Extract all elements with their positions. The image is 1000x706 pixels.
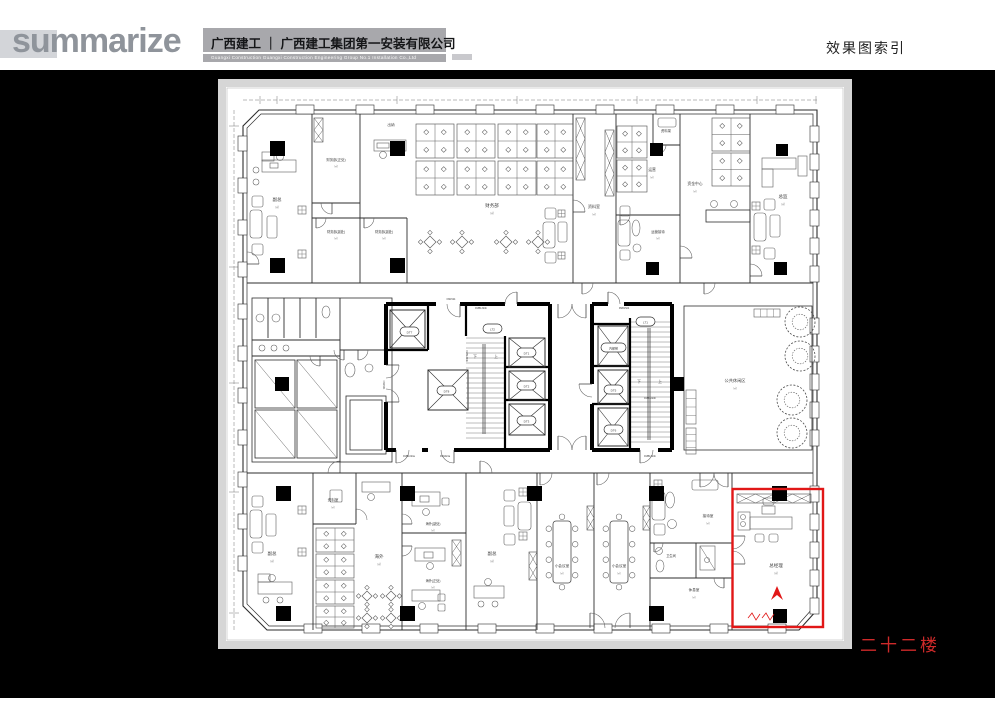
svg-text:卫生间: 卫生间 [666,553,676,558]
svg-text:小会议室: 小会议室 [612,563,627,568]
svg-text:内部梯: 内部梯 [609,345,618,350]
svg-text:(㎡): (㎡) [592,212,596,216]
svg-text:下: 下 [473,355,477,359]
svg-text:DT8: DT8 [444,389,450,393]
svg-text:总监: 总监 [779,193,788,199]
svg-text:小会议室: 小会议室 [555,563,570,568]
svg-text:财务部(副处): 财务部(副处) [327,229,345,234]
svg-text:资料室: 资料室 [328,497,339,502]
banner-divider [203,52,446,54]
svg-text:财务部(正处): 财务部(正处) [326,157,345,162]
svg-text:接待室: 接待室 [703,513,714,518]
page-title: 效果图索引 [826,38,906,58]
svg-text:(㎡): (㎡) [331,505,335,509]
svg-text:(㎡): (㎡) [334,164,338,168]
floor-label: 二十二楼 [860,631,940,656]
svg-text:FMB1324b: FMB1324b [475,307,487,310]
svg-text:FM1524: FM1524 [447,298,456,301]
svg-text:公共休闲区: 公共休闲区 [725,377,746,384]
svg-text:FMB1024a: FMB1024a [403,455,415,458]
svg-text:(㎡): (㎡) [617,571,621,575]
svg-text:(㎡): (㎡) [693,189,697,193]
svg-text:(㎡): (㎡) [490,211,494,215]
company-name-en: Guangxi Construction Guangxi Constructio… [211,55,416,60]
svg-text:副总: 副总 [488,550,497,557]
svg-text:财务部(副处): 财务部(副处) [375,229,393,234]
svg-text:FMB1524: FMB1524 [619,307,630,310]
svg-text:上: 上 [658,379,662,384]
svg-text:财务部: 财务部 [485,202,499,209]
decorative-patch [452,54,472,60]
svg-text:FMB1324b: FMB1324b [465,350,468,362]
svg-text:(㎡): (㎡) [706,521,710,525]
svg-text:运营: 运营 [648,167,656,172]
svg-text:FM1024a: FM1024a [440,455,451,458]
svg-text:FMB1224b: FMB1224b [644,455,656,458]
floor-plan-svg: DT7DT8DT1DT2DT3LT2LT1内部梯DT5DT6副总(㎡)财务部(正… [0,0,1000,706]
svg-text:资料室: 资料室 [588,203,600,209]
svg-text:运营接待: 运营接待 [651,229,665,234]
svg-text:资料架: 资料架 [661,128,672,133]
svg-text:(㎡): (㎡) [431,528,435,532]
svg-text:(㎡): (㎡) [382,236,386,240]
svg-text:海外(副处): 海外(副处) [426,521,441,526]
svg-text:(㎡): (㎡) [560,571,564,575]
svg-text:海外(正处): 海外(正处) [426,578,441,583]
svg-text:LT1: LT1 [643,320,648,324]
svg-text:LT2: LT2 [490,327,495,331]
svg-text:副总: 副总 [273,196,282,203]
svg-text:DT5: DT5 [611,388,617,392]
svg-text:(㎡): (㎡) [334,236,338,240]
background-layer [0,70,995,698]
svg-text:总经理: 总经理 [769,562,783,568]
svg-text:DT6: DT6 [611,428,617,432]
svg-text:上: 上 [494,354,498,359]
svg-text:FMB1224b: FMB1224b [644,397,656,400]
svg-text:(㎡): (㎡) [275,205,279,209]
slide: DT7DT8DT1DT2DT3LT2LT1内部梯DT5DT6副总(㎡)财务部(正… [0,0,1000,706]
svg-text:(㎡): (㎡) [733,386,737,390]
svg-text:资金中心: 资金中心 [687,181,702,186]
svg-text:出纳: 出纳 [387,122,395,127]
svg-text:休息室: 休息室 [689,587,700,592]
logo-text: summarize [12,22,181,61]
svg-text:DT3: DT3 [524,419,530,423]
svg-text:(㎡): (㎡) [490,559,494,563]
svg-text:(㎡): (㎡) [692,595,696,599]
svg-text:FM1524: FM1524 [382,381,385,390]
svg-text:(㎡): (㎡) [270,559,274,563]
svg-text:(㎡): (㎡) [656,236,660,240]
svg-text:(㎡): (㎡) [774,571,778,575]
svg-text:下: 下 [637,380,641,384]
svg-text:副总: 副总 [268,550,277,557]
svg-text:DT2: DT2 [524,384,530,388]
company-name-cn: 广西建工 ｜ 广西建工集团第一安装有限公司 [211,33,455,52]
svg-text:DT7: DT7 [407,330,413,334]
svg-text:(㎡): (㎡) [650,175,654,179]
svg-text:(㎡): (㎡) [431,585,435,589]
svg-text:DT1: DT1 [524,351,530,355]
svg-text:海外: 海外 [375,553,384,560]
svg-text:(㎡): (㎡) [781,202,785,206]
svg-text:(㎡): (㎡) [377,562,381,566]
